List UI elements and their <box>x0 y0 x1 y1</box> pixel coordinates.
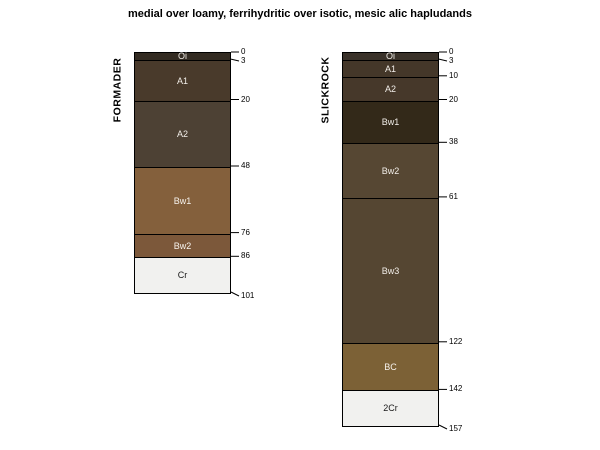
horizon-formader-oi: Oi <box>135 53 230 60</box>
horizon-label: Bw2 <box>174 242 192 251</box>
horizon-formader-bw2: Bw2 <box>135 234 230 257</box>
depth-label-formader-101: 101 <box>241 291 254 301</box>
profile-id-label: FORMADER <box>111 58 123 123</box>
horizon-slickrock-a2: A2 <box>343 77 438 101</box>
profile-column-slickrock: OiA1A2Bw1Bw2Bw3BC2Cr <box>342 52 439 427</box>
horizon-slickrock-bw3: Bw3 <box>343 198 438 343</box>
plot-title: medial over loamy, ferrihydritic over is… <box>0 8 600 20</box>
horizon-label: Bw1 <box>382 118 400 127</box>
horizon-slickrock-a1: A1 <box>343 60 438 77</box>
horizon-label: Bw3 <box>382 267 400 276</box>
horizon-label: A2 <box>385 85 396 94</box>
horizon-label: A2 <box>177 130 188 139</box>
horizon-formader-bw1: Bw1 <box>135 167 230 234</box>
horizon-formader-cr: Cr <box>135 257 230 293</box>
depth-axis-formader <box>231 46 243 298</box>
horizon-formader-a1: A1 <box>135 60 230 101</box>
profile-column-formader: OiA1A2Bw1Bw2Cr <box>134 52 231 294</box>
depth-axis-slickrock <box>439 46 451 431</box>
horizon-label: BC <box>384 363 397 372</box>
profile-id-label: SLICKROCK <box>319 57 331 124</box>
depth-label-slickrock-122: 122 <box>449 337 462 347</box>
depth-tick-leader <box>439 59 447 61</box>
depth-tick-leader <box>231 59 239 61</box>
horizon-label: 2Cr <box>383 404 398 413</box>
profile-id-slickrock: SLICKROCK <box>316 52 334 128</box>
horizon-label: Bw2 <box>382 167 400 176</box>
depth-tick-leader <box>231 292 239 296</box>
horizon-slickrock-bc: BC <box>343 343 438 390</box>
horizon-label: Cr <box>178 271 188 280</box>
depth-label-slickrock-142: 142 <box>449 384 462 394</box>
horizon-slickrock-bw2: Bw2 <box>343 143 438 198</box>
horizon-label: A1 <box>177 77 188 86</box>
soil-profile-plot: medial over loamy, ferrihydritic over is… <box>0 0 600 450</box>
horizon-label: A1 <box>385 65 396 74</box>
horizon-slickrock-bw1: Bw1 <box>343 101 438 143</box>
horizon-slickrock-oi: Oi <box>343 53 438 60</box>
horizon-label: Bw1 <box>174 197 192 206</box>
depth-label-slickrock-157: 157 <box>449 424 462 434</box>
horizon-slickrock-2cr: 2Cr <box>343 390 438 426</box>
horizon-formader-a2: A2 <box>135 101 230 167</box>
profile-id-formader: FORMADER <box>108 52 126 128</box>
depth-tick-leader <box>439 425 447 429</box>
